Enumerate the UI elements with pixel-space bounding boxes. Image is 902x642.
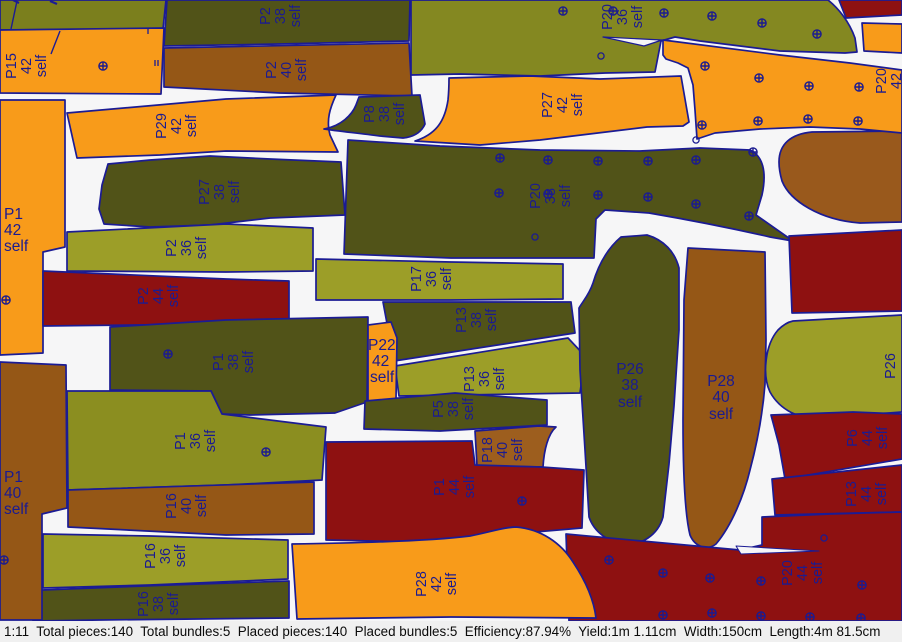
- svg-text:P28: P28: [707, 373, 735, 390]
- svg-text:self: self: [618, 394, 643, 411]
- svg-text:1:11 Total pieces:140 Total: 1:11 Total pieces:140 Total bundles:5 Pl…: [4, 624, 880, 639]
- svg-text:42: 42: [4, 222, 21, 239]
- svg-text:self: self: [709, 406, 734, 423]
- svg-text:self: self: [370, 369, 395, 386]
- svg-text:42: 42: [372, 353, 389, 370]
- svg-text:P22: P22: [368, 337, 396, 354]
- svg-text:self: self: [4, 501, 29, 518]
- svg-text:self: self: [4, 238, 29, 255]
- svg-text:P26: P26: [883, 353, 899, 379]
- svg-text:P1: P1: [4, 206, 23, 223]
- svg-text:38: 38: [621, 377, 638, 394]
- svg-text:P1: P1: [4, 469, 23, 486]
- svg-text:P26: P26: [616, 361, 644, 378]
- svg-text:40: 40: [4, 485, 22, 502]
- svg-text:40: 40: [712, 389, 730, 406]
